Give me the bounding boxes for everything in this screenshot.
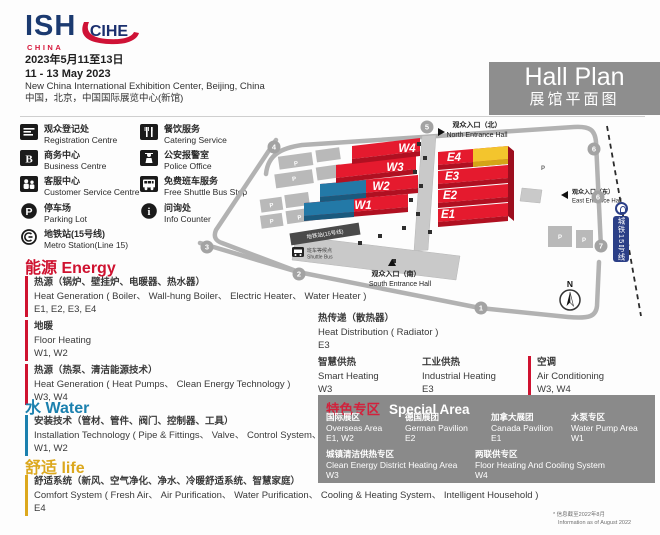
item-cn: 空调 xyxy=(537,356,604,370)
business-centre-icon: B xyxy=(20,150,38,166)
parking-letter: P xyxy=(541,166,545,172)
cell-cn: 水泵专区 xyxy=(571,412,638,423)
item-cn: 智慧供热 xyxy=(318,356,379,370)
cell-halls: E1, W2 xyxy=(326,433,382,444)
metro-station-icon xyxy=(20,229,38,245)
item-halls: E1, E2, E3, E4 xyxy=(34,303,366,317)
legend-label-en: Metro Station(Line 15) xyxy=(44,240,128,251)
cell-cn: 国际展区 xyxy=(326,412,382,423)
hall-plan-title-en: Hall Plan xyxy=(489,63,660,91)
cell-halls: E1 xyxy=(491,433,553,444)
hall-label-e4: E4 xyxy=(447,152,462,164)
cell-halls: W4 xyxy=(475,470,605,481)
east-entrance-arrow-icon xyxy=(561,191,568,199)
cell-halls: W3 xyxy=(326,470,457,481)
item-cn: 热传递（散热器） xyxy=(318,312,438,326)
hall-label-w4: W4 xyxy=(398,143,416,155)
svg-text:7: 7 xyxy=(599,242,603,251)
ish-logo: ISH xyxy=(25,12,76,41)
compass: N xyxy=(560,279,580,310)
legend-label-cn: 商务中心 xyxy=(44,150,106,161)
energy-item-heat-distribution: 热传递（散热器） Heat Distribution ( Radiator ) … xyxy=(318,312,438,353)
item-en: Heat Generation ( Boiler、 Wall-hung Boil… xyxy=(34,290,366,304)
legend-label-cn: 停车场 xyxy=(44,203,87,214)
parking-letter: P xyxy=(270,219,275,226)
south-entrance-en: South Entrance Hall xyxy=(369,281,432,288)
cell-cn: 两联供专区 xyxy=(475,449,605,460)
svg-text:1: 1 xyxy=(479,304,483,313)
cihe-text: CIHE xyxy=(90,23,129,40)
svg-text:3: 3 xyxy=(205,243,209,252)
energy-item-industrial-heating: 工业供热 Industrial Heating E3 xyxy=(422,356,496,397)
special-area-clean-energy: 城镇清洁供热专区 Clean Energy District Heating A… xyxy=(326,449,457,481)
north-entrance-cn: 观众入口（北） xyxy=(453,120,502,129)
svg-text:P: P xyxy=(25,206,32,218)
legend-label-cn: 客服中心 xyxy=(44,176,139,187)
catering-icon xyxy=(140,124,158,140)
item-halls: W1, W2 xyxy=(34,347,91,361)
date-cn: 2023年5月11至13日 xyxy=(25,53,123,67)
item-halls: E3 xyxy=(318,339,438,353)
parking-letter: P xyxy=(558,235,562,241)
item-cn: 热源（热泵、清洁能源技术） xyxy=(34,364,290,378)
info-icon: i xyxy=(140,203,158,219)
item-en: Floor Heating xyxy=(34,334,91,348)
cell-halls: E2 xyxy=(405,433,468,444)
energy-item-smart-heating: 智慧供热 Smart Heating W3 xyxy=(318,356,379,397)
special-area-canada: 加拿大展团 Canada Pavilion E1 xyxy=(491,412,553,444)
legend-item-customer-service: 客服中心Customer Service Centre xyxy=(20,176,139,197)
parking-letter: P xyxy=(292,177,297,184)
energy-section-title: 能源 Energy xyxy=(25,254,116,278)
parking-lots-east: P P P xyxy=(541,166,593,248)
cell-cn: 加拿大展团 xyxy=(491,412,553,423)
cihe-logo: CIHE xyxy=(76,15,142,53)
item-en: Installation Technology ( Pipe & Fitting… xyxy=(34,429,352,443)
metro-line-15-banner: 城铁15号线 xyxy=(613,216,629,262)
hall-label-e3: E3 xyxy=(445,171,460,183)
hall-plan-title-cn: 展馆平面图 xyxy=(489,91,660,109)
water-item-installation-technology: 安装技术（管材、管件、阀门、控制器、工具） Installation Techn… xyxy=(25,415,352,456)
footnote: * 信息截至2022年8月 Information as of August 2… xyxy=(553,511,631,527)
cell-cn: 城镇清洁供热专区 xyxy=(326,449,457,460)
hall-label-w2: W2 xyxy=(372,181,390,193)
gate-marker: 6 xyxy=(588,143,601,156)
item-cn: 地暖 xyxy=(34,320,91,334)
north-entrance: 观众入口（北） North Entrance Hall xyxy=(438,120,508,139)
item-en: Industrial Heating xyxy=(422,370,496,384)
ish-logo-china: CHINA xyxy=(27,43,63,52)
hall-label-w1: W1 xyxy=(354,200,371,212)
cell-halls: W1 xyxy=(571,433,638,444)
energy-title-cn: 能源 xyxy=(25,260,57,277)
compass-n-label: N xyxy=(567,279,573,289)
legend-item-business: B 商务中心Business Centre xyxy=(20,150,106,171)
shuttle-label-en: Shuttle Bus xyxy=(307,255,333,261)
cell-en: Clean Energy District Heating Area xyxy=(326,460,457,471)
energy-item-floor-heating: 地暖 Floor Heating W1, W2 xyxy=(25,320,91,361)
footnote-en: Information as of August 2022 xyxy=(553,519,631,527)
special-area-box: 特色专区Special Area 国际展区 Overseas Area E1, … xyxy=(318,395,655,483)
gate-marker: 1 xyxy=(475,302,488,315)
cell-en: Canada Pavilion xyxy=(491,423,553,434)
energy-item-air-conditioning: 空调 Air Conditioning W3, W4 xyxy=(528,356,604,397)
gate-marker: 3 xyxy=(201,241,214,254)
north-entrance-en: North Entrance Hall xyxy=(446,132,508,139)
south-entrance-cn: 观众入口（南） xyxy=(372,269,421,278)
item-halls: E4 xyxy=(34,502,538,516)
cell-cn: 德国展团 xyxy=(405,412,468,423)
registration-icon xyxy=(20,124,38,140)
energy-title-en: Energy xyxy=(61,260,115,277)
date-en: 11 - 13 May 2023 xyxy=(25,67,111,81)
cell-en: Water Pump Area xyxy=(571,423,638,434)
shuttle-bus-icon xyxy=(140,176,158,192)
gate-marker: 7 xyxy=(595,240,608,253)
parking-letter: P xyxy=(297,215,302,222)
customer-service-icon xyxy=(20,176,38,192)
east-concourse xyxy=(520,188,542,203)
footnote-cn: * 信息截至2022年8月 xyxy=(553,511,631,519)
legend-label-en: Registration Centre xyxy=(44,135,117,146)
shuttle-label-cn: 班车等候点 xyxy=(307,247,332,254)
svg-text:i: i xyxy=(148,207,151,218)
svg-text:6: 6 xyxy=(592,145,596,154)
hall-label-e2: E2 xyxy=(443,190,458,202)
item-cn: 工业供热 xyxy=(422,356,496,370)
svg-text:6: 6 xyxy=(596,193,600,202)
parking-icon: P xyxy=(20,203,38,219)
cell-en: Overseas Area xyxy=(326,423,382,434)
cell-en: Floor Heating And Cooling System xyxy=(475,460,605,471)
gate-marker: 6 xyxy=(592,191,605,204)
legend-item-parking: P 停车场Parking Lot xyxy=(20,203,87,224)
legend-label-cn: 地铁站(15号线) xyxy=(44,229,128,240)
parking-letter: P xyxy=(294,161,299,168)
legend-label-en: Business Centre xyxy=(44,161,106,172)
venue-en: New China International Exhibition Cente… xyxy=(25,81,265,94)
svg-text:B: B xyxy=(25,154,33,166)
special-area-german: 德国展团 German Pavilion E2 xyxy=(405,412,468,444)
legend-item-registration: 观众登记处Registration Centre xyxy=(20,124,117,145)
legend-label-en: Customer Service Centre xyxy=(44,187,139,198)
item-en: Smart Heating xyxy=(318,370,379,384)
venue-cn: 中国，北京，中国国际展览中心(新馆) xyxy=(25,93,183,106)
item-cn: 热源（锅炉、壁挂炉、电暖器、热水器） xyxy=(34,276,366,290)
special-area-water-pump: 水泵专区 Water Pump Area W1 xyxy=(571,412,638,444)
hall-label-w3: W3 xyxy=(386,162,404,174)
metro-logo-icon xyxy=(615,202,628,215)
legend-label-cn: 观众登记处 xyxy=(44,124,117,135)
energy-item-heat-generation-boiler: 热源（锅炉、壁挂炉、电暖器、热水器） Heat Generation ( Boi… xyxy=(25,276,366,317)
hall-plan-title-box: Hall Plan 展馆平面图 xyxy=(489,62,660,115)
special-area-floor-heating-cooling: 两联供专区 Floor Heating And Cooling System W… xyxy=(475,449,605,481)
item-en: Air Conditioning xyxy=(537,370,604,384)
hall-label-e1: E1 xyxy=(441,209,455,221)
cell-en: German Pavilion xyxy=(405,423,468,434)
gate-marker: 4 xyxy=(268,141,281,154)
legend-item-metro: 地铁站(15号线)Metro Station(Line 15) xyxy=(20,229,128,250)
parking-letter: P xyxy=(582,238,586,244)
item-en: Comfort System ( Fresh Air、 Air Purifica… xyxy=(34,489,538,503)
parking-letter: P xyxy=(269,203,274,210)
item-en: Heat Generation ( Heat Pumps、 Clean Ener… xyxy=(34,378,290,392)
special-area-overseas: 国际展区 Overseas Area E1, W2 xyxy=(326,412,382,444)
item-cn: 安装技术（管材、管件、阀门、控制器、工具） xyxy=(34,415,352,429)
legend-label-en: Parking Lot xyxy=(44,214,87,225)
gate-marker: 5 xyxy=(421,121,434,134)
item-en: Heat Distribution ( Radiator ) xyxy=(318,326,438,340)
east-entrance: 观众入口（东） East Entrance Hall xyxy=(561,188,622,205)
hall-plan-poster: ISH CHINA CIHE 2023年5月11至13日 11 - 13 May… xyxy=(0,0,660,535)
svg-text:5: 5 xyxy=(425,123,429,132)
police-icon xyxy=(140,150,158,166)
